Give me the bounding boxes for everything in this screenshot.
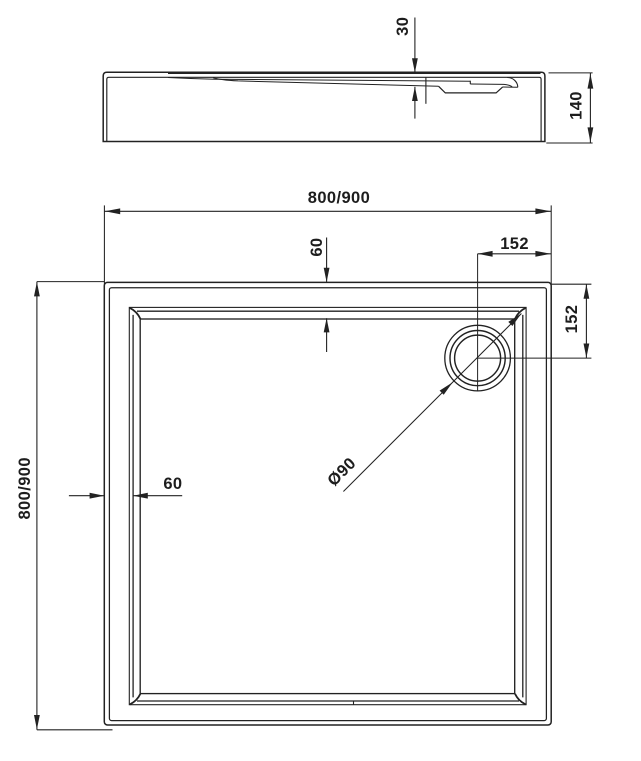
svg-text:152: 152 [500, 235, 529, 253]
svg-text:60: 60 [308, 238, 326, 257]
svg-text:800/900: 800/900 [16, 457, 34, 519]
svg-text:30: 30 [394, 17, 412, 36]
svg-text:800/900: 800/900 [308, 189, 370, 207]
svg-text:152: 152 [563, 305, 581, 334]
svg-text:Ø90: Ø90 [324, 454, 360, 490]
svg-text:60: 60 [163, 475, 182, 493]
svg-text:140: 140 [567, 91, 585, 120]
